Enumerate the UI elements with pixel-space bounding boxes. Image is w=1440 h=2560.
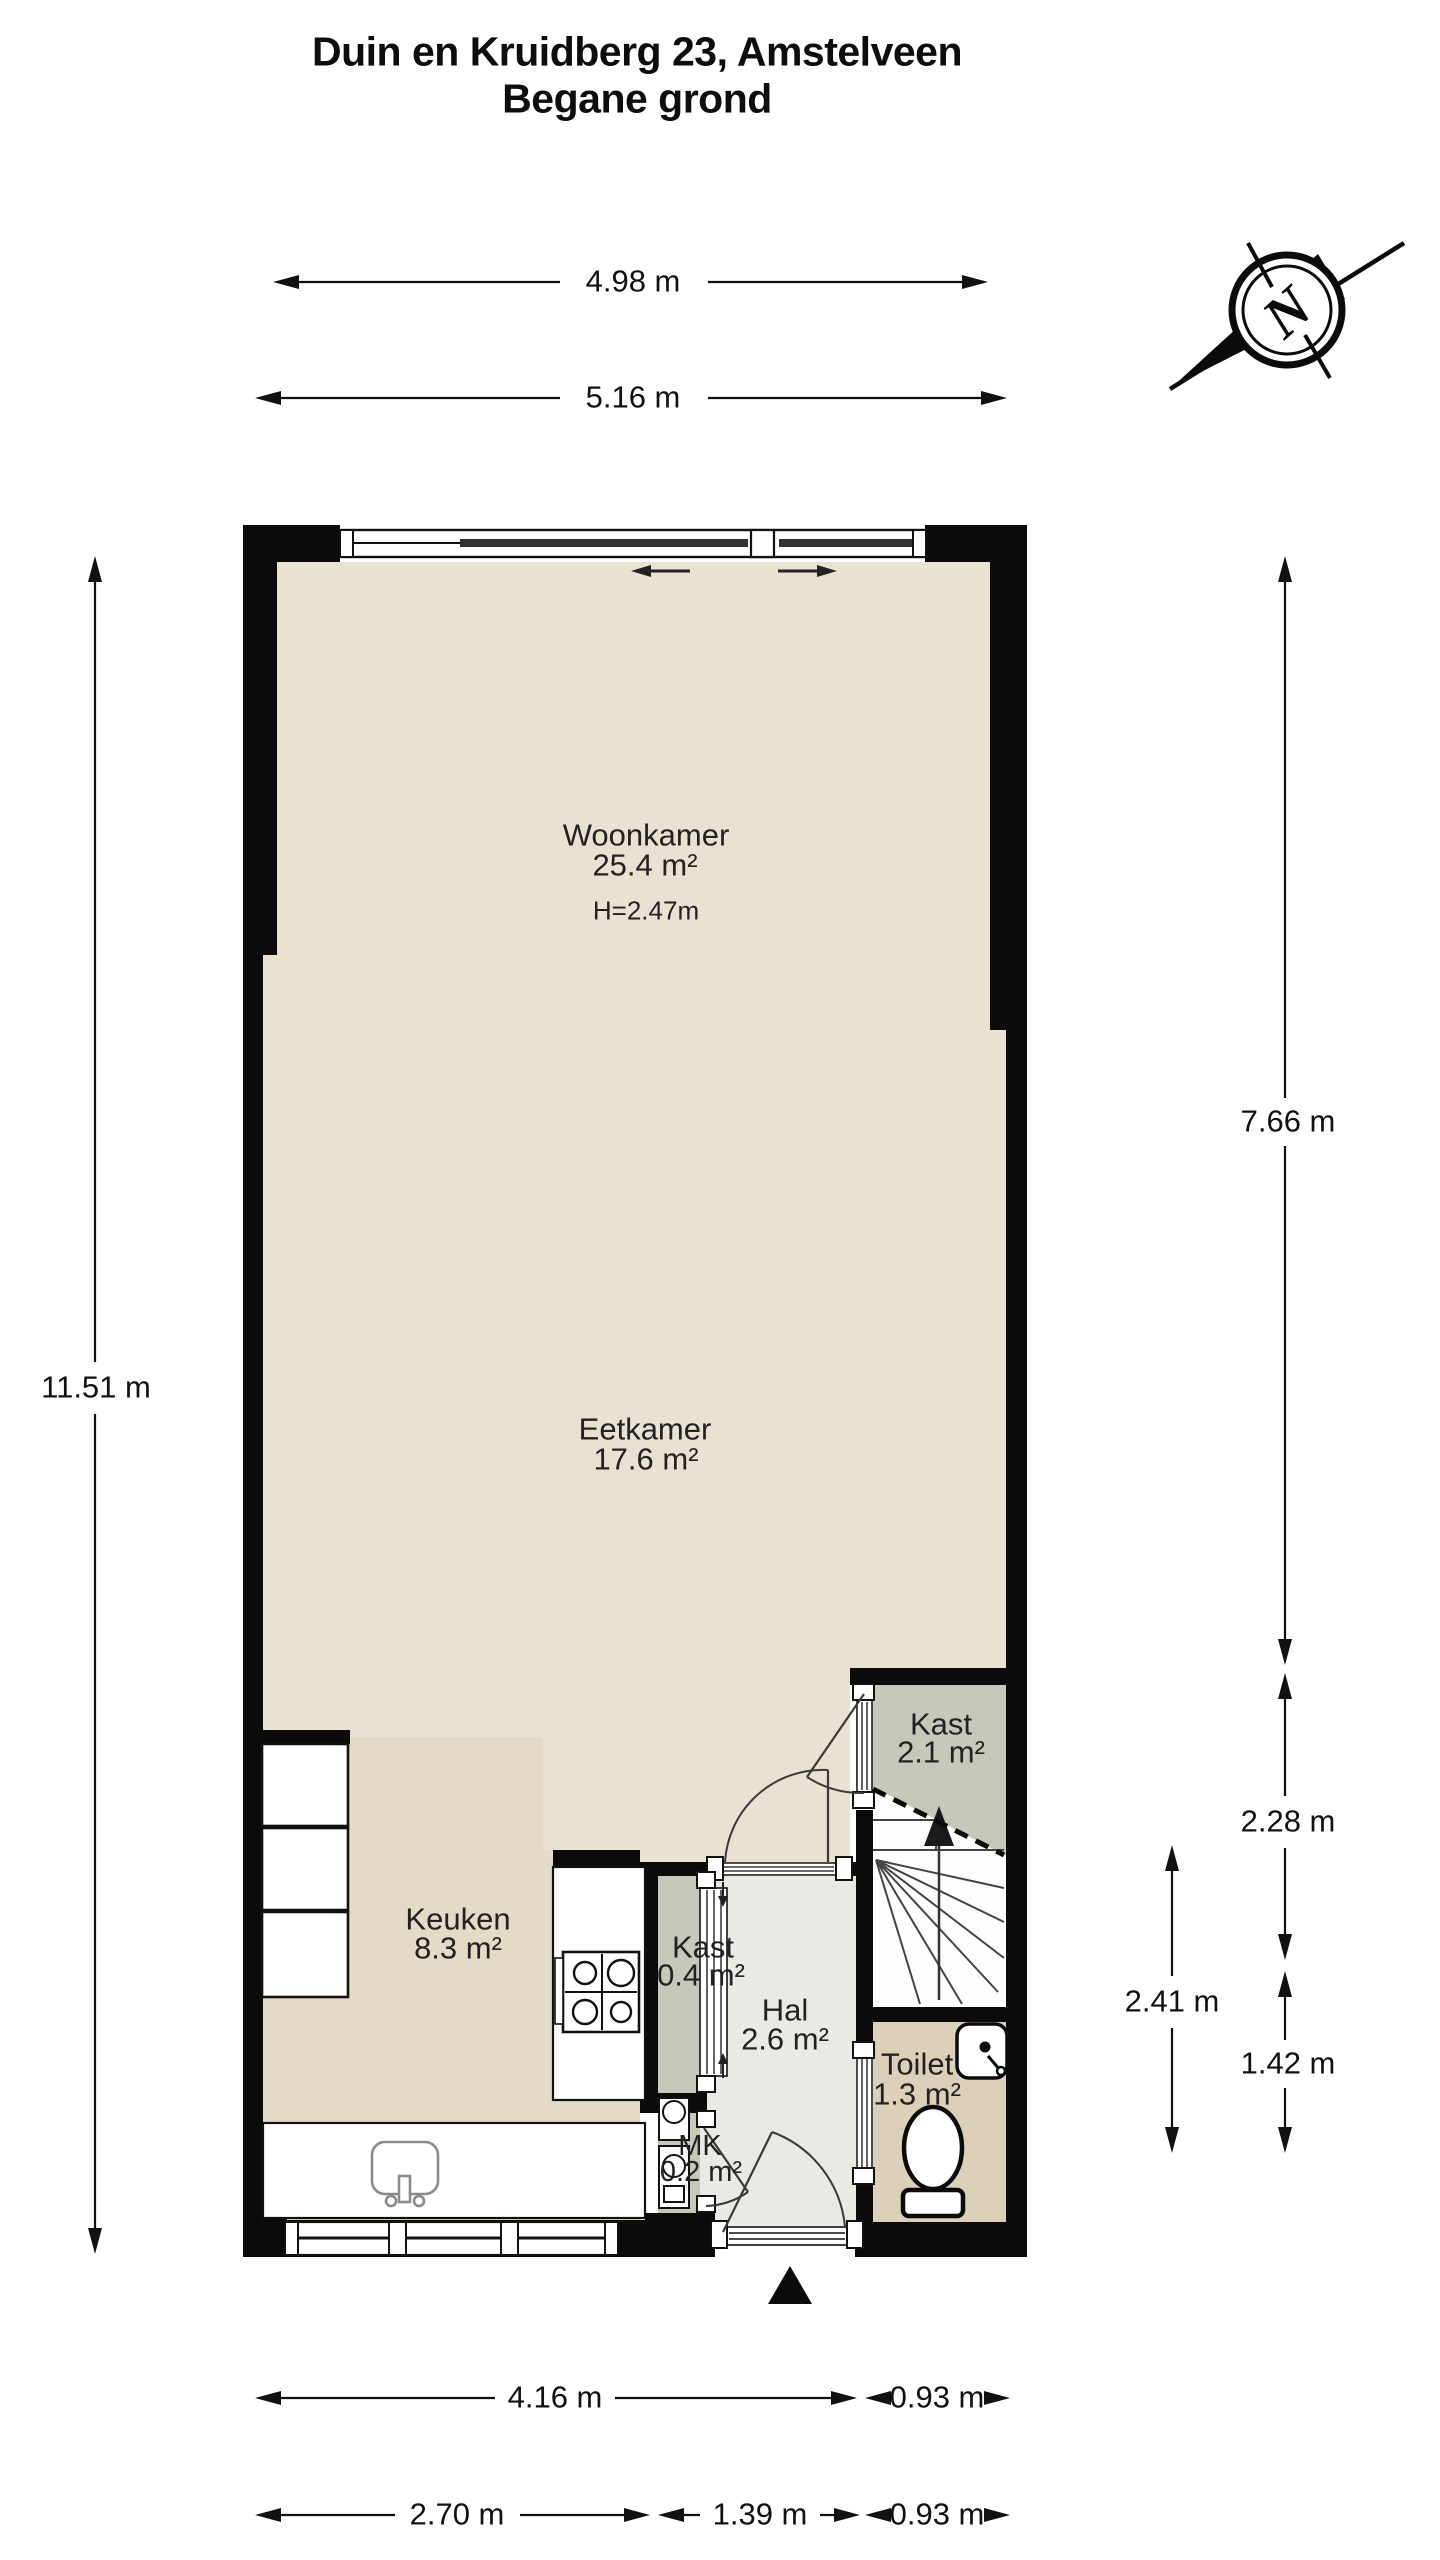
kitchen-window-bottom bbox=[285, 2222, 618, 2255]
sink-counter bbox=[263, 2123, 645, 2218]
meter-symbols-icon bbox=[659, 2098, 689, 2208]
closet-small-floor bbox=[658, 1876, 700, 2093]
toilet-sink-icon bbox=[957, 2024, 1007, 2078]
living-dining-floor bbox=[263, 562, 1006, 1862]
wall-segment bbox=[990, 555, 1027, 1030]
floorplan-drawing: N bbox=[0, 0, 1440, 2560]
wall-segment bbox=[855, 2222, 1027, 2257]
toilet-door bbox=[853, 2042, 874, 2184]
wall-segment bbox=[553, 1850, 640, 1867]
toilet-fixture-icon bbox=[903, 2107, 963, 2216]
entrance-arrow-icon bbox=[768, 2266, 812, 2304]
wall-segment bbox=[1006, 1030, 1027, 2257]
kitchen-cabinets bbox=[262, 1744, 348, 1997]
wall-segment bbox=[645, 2213, 715, 2257]
floorplan-page: N Duin en Kruidberg 23, Amstelveen Began… bbox=[0, 0, 1440, 2560]
hob-counter bbox=[553, 1867, 645, 2100]
wall-segment bbox=[243, 555, 277, 955]
sliding-window-top bbox=[340, 530, 926, 557]
wall-segment bbox=[243, 955, 263, 2257]
wall-segment bbox=[850, 1668, 1006, 1685]
compass-rose: N bbox=[1170, 243, 1404, 389]
wall-segment bbox=[856, 2007, 1006, 2022]
wall-segment bbox=[258, 1730, 350, 1744]
